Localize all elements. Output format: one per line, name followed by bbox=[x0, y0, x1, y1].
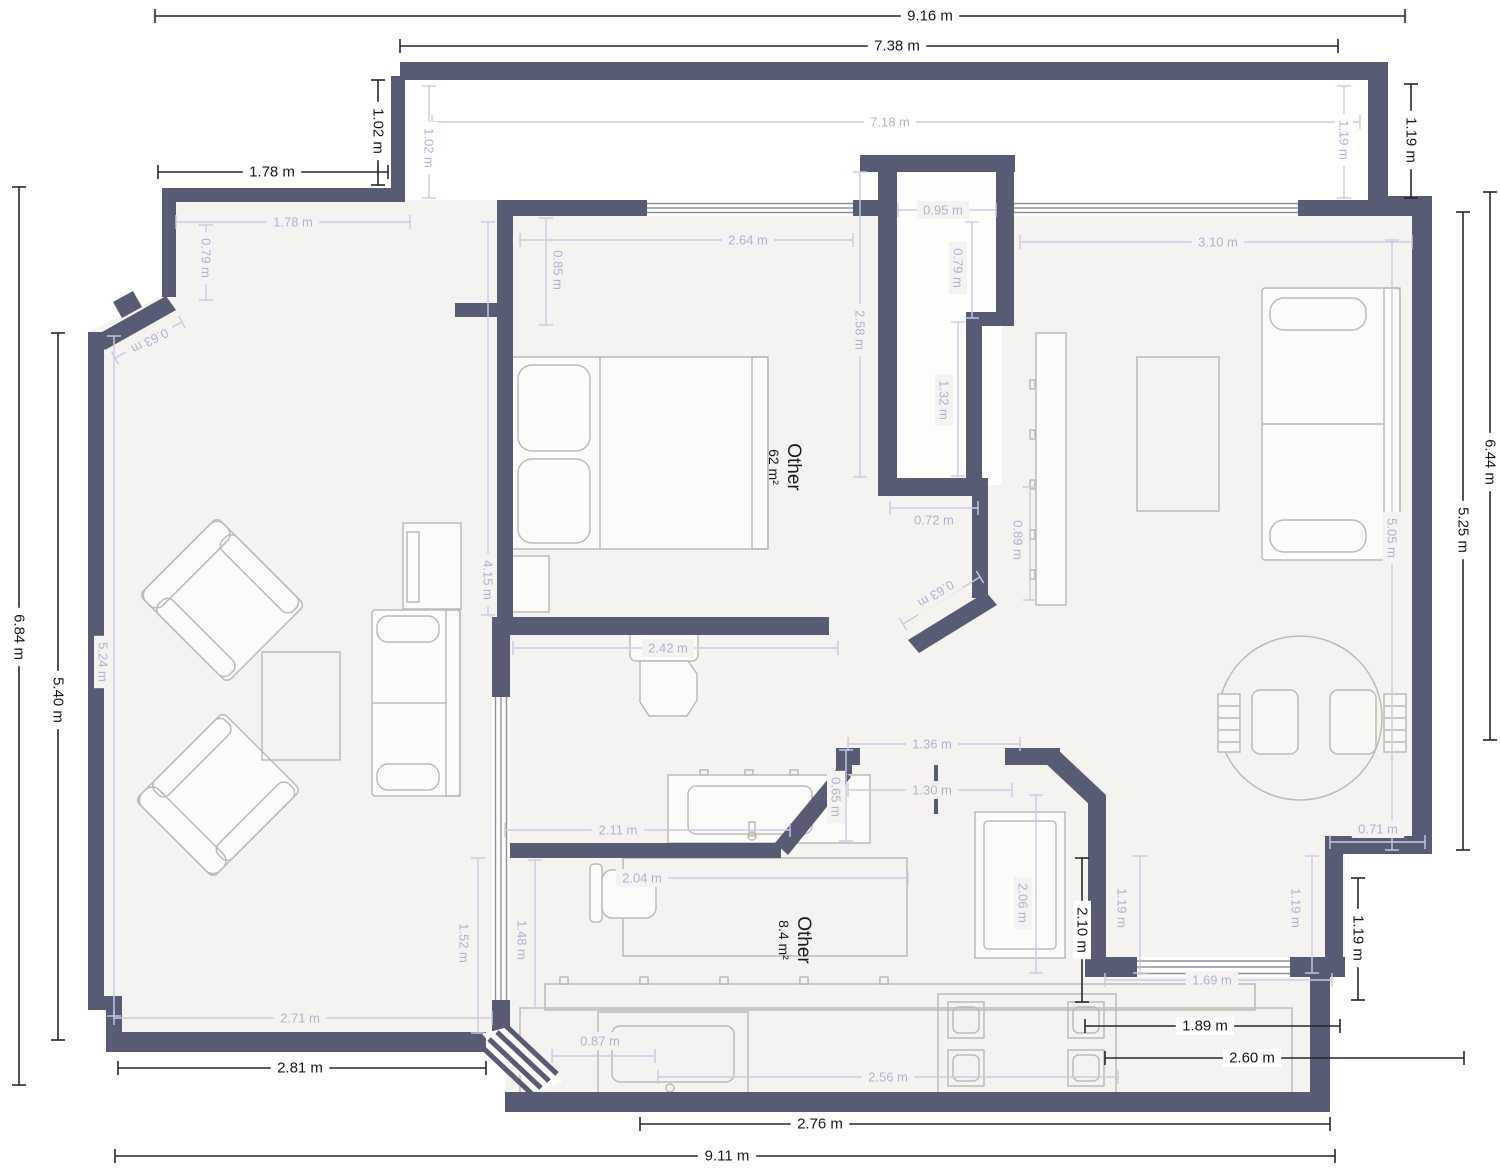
dimension-2.76m: 2.76 m bbox=[640, 1115, 1330, 1133]
svg-text:1.19 m: 1.19 m bbox=[1289, 888, 1304, 928]
sofa-right bbox=[1262, 288, 1400, 560]
svg-text:2.58 m: 2.58 m bbox=[853, 310, 868, 350]
dimension-1.02m: 1.02 m bbox=[420, 86, 438, 198]
svg-text:7.38 m: 7.38 m bbox=[874, 38, 920, 55]
window-living-top bbox=[1014, 200, 1298, 216]
svg-text:1.36 m: 1.36 m bbox=[912, 737, 952, 752]
dimension-5.40m: 5.40 m bbox=[49, 333, 67, 1040]
svg-text:1.48 m: 1.48 m bbox=[515, 920, 530, 960]
svg-text:0.95 m: 0.95 m bbox=[923, 203, 963, 218]
dimension-6.84m: 6.84 m bbox=[10, 187, 28, 1085]
dimension-2.81m: 2.81 m bbox=[118, 1059, 486, 1077]
svg-text:0.85 m: 0.85 m bbox=[551, 250, 566, 290]
svg-text:1.02 m: 1.02 m bbox=[370, 108, 387, 154]
floor-plan-canvas: 9.16 m7.38 m1.02 m1.78 m1.19 m6.44 m5.25… bbox=[0, 0, 1500, 1170]
svg-text:2.64 m: 2.64 m bbox=[728, 233, 768, 248]
dimension-1.78m: 1.78 m bbox=[158, 163, 388, 181]
svg-text:1.89 m: 1.89 m bbox=[1182, 1018, 1228, 1035]
svg-text:0.89 m: 0.89 m bbox=[1011, 520, 1026, 560]
svg-text:2.10 m: 2.10 m bbox=[1074, 907, 1091, 953]
room-label: Other8.4 m² bbox=[776, 916, 814, 964]
svg-text:9.16 m: 9.16 m bbox=[907, 8, 953, 25]
window-bedroom-top bbox=[647, 200, 853, 216]
svg-text:5.40 m: 5.40 m bbox=[50, 677, 67, 723]
tv-console bbox=[403, 523, 461, 609]
double-bed bbox=[512, 357, 768, 549]
svg-text:0.87 m: 0.87 m bbox=[580, 1034, 620, 1049]
svg-text:2.60 m: 2.60 m bbox=[1229, 1050, 1275, 1067]
svg-text:5.24 m: 5.24 m bbox=[96, 642, 111, 682]
radiator-left bbox=[1218, 694, 1240, 752]
svg-text:Other: Other bbox=[783, 443, 804, 491]
svg-text:0.79 m: 0.79 m bbox=[951, 248, 966, 288]
svg-text:Other: Other bbox=[793, 916, 814, 964]
radiator-right bbox=[1384, 694, 1406, 752]
svg-text:1.69 m: 1.69 m bbox=[1192, 973, 1232, 988]
svg-text:2.42 m: 2.42 m bbox=[648, 641, 688, 656]
svg-text:0.79 m: 0.79 m bbox=[199, 238, 214, 278]
svg-text:1.30 m: 1.30 m bbox=[912, 783, 952, 798]
dining-chair-right bbox=[1330, 690, 1376, 754]
dimension-1.19m: 1.19 m bbox=[1402, 84, 1420, 198]
sofa-left bbox=[372, 610, 460, 796]
dimension-1.19m: 1.19 m bbox=[1335, 86, 1353, 198]
svg-text:6.44 m: 6.44 m bbox=[1482, 439, 1499, 485]
svg-text:0.72 m: 0.72 m bbox=[914, 513, 954, 528]
svg-text:0.65 m: 0.65 m bbox=[829, 777, 844, 817]
svg-text:8.4 m²: 8.4 m² bbox=[776, 920, 792, 960]
svg-text:6.84 m: 6.84 m bbox=[11, 614, 28, 660]
svg-text:2.04 m: 2.04 m bbox=[622, 871, 662, 886]
svg-text:4.15 m: 4.15 m bbox=[481, 560, 496, 600]
svg-text:62 m²: 62 m² bbox=[766, 449, 782, 485]
svg-text:2.56 m: 2.56 m bbox=[868, 1070, 908, 1085]
room-label: Other62 m² bbox=[766, 443, 804, 491]
svg-text:1.78 m: 1.78 m bbox=[249, 164, 295, 181]
dining-chair-left bbox=[1252, 690, 1298, 754]
svg-text:2.81 m: 2.81 m bbox=[277, 1060, 323, 1077]
svg-text:2.06 m: 2.06 m bbox=[1016, 883, 1031, 923]
svg-text:2.71 m: 2.71 m bbox=[280, 1011, 320, 1026]
window-hall-left bbox=[492, 697, 510, 1000]
svg-text:1.19 m: 1.19 m bbox=[1115, 888, 1130, 928]
dimension-9.11m: 9.11 m bbox=[115, 1147, 1335, 1165]
svg-text:0.71 m: 0.71 m bbox=[1358, 822, 1398, 837]
dimension-7.38m: 7.38 m bbox=[400, 37, 1338, 55]
svg-text:5.25 m: 5.25 m bbox=[1455, 507, 1472, 553]
svg-text:1.19 m: 1.19 m bbox=[1350, 915, 1367, 961]
svg-text:1.19 m: 1.19 m bbox=[1403, 117, 1420, 163]
dimension-7.18m: 7.18 m bbox=[432, 113, 1360, 131]
floor-plan: 9.16 m7.38 m1.02 m1.78 m1.19 m6.44 m5.25… bbox=[0, 0, 1500, 1170]
svg-text:1.32 m: 1.32 m bbox=[937, 380, 952, 420]
dimension-6.44m: 6.44 m bbox=[1481, 192, 1499, 740]
dimension-1.19m: 1.19 m bbox=[1349, 878, 1367, 1000]
svg-text:2.76 m: 2.76 m bbox=[797, 1116, 843, 1133]
svg-text:1.52 m: 1.52 m bbox=[457, 923, 472, 963]
dimension-1.02m: 1.02 m bbox=[369, 80, 387, 185]
svg-text:2.11 m: 2.11 m bbox=[599, 823, 638, 838]
svg-text:1.19 m: 1.19 m bbox=[1337, 120, 1352, 160]
svg-text:9.11 m: 9.11 m bbox=[705, 1148, 750, 1165]
svg-text:5.05 m: 5.05 m bbox=[1385, 518, 1400, 558]
svg-text:7.18 m: 7.18 m bbox=[870, 115, 910, 130]
svg-text:1.02 m: 1.02 m bbox=[422, 128, 437, 168]
sideboard bbox=[1030, 333, 1066, 605]
svg-text:3.10 m: 3.10 m bbox=[1198, 235, 1238, 250]
svg-text:1.78 m: 1.78 m bbox=[273, 215, 313, 230]
dimension-5.25m: 5.25 m bbox=[1454, 212, 1472, 850]
dimension-9.16m: 9.16 m bbox=[155, 7, 1405, 25]
